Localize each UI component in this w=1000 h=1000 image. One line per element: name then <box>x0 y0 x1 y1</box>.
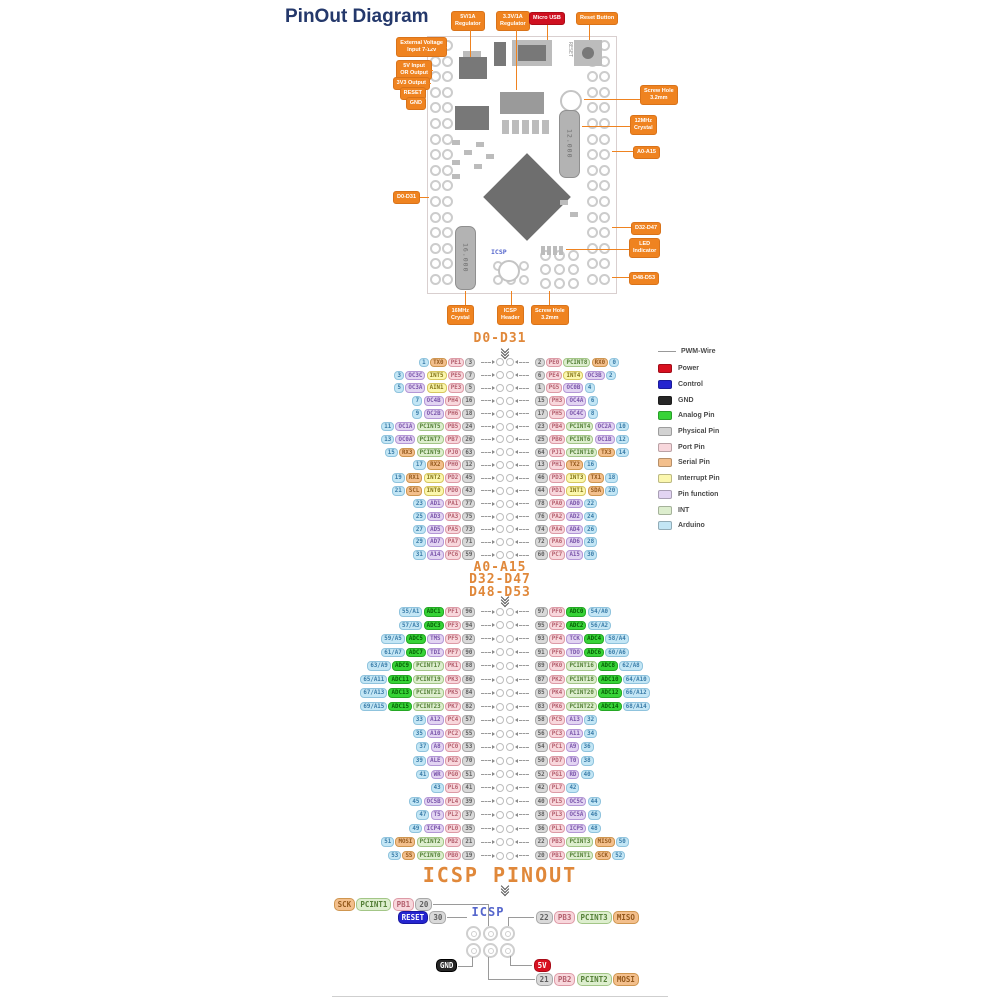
pin-row: 39ALEPG27050PD7T038 <box>10 754 1000 768</box>
leader-line <box>470 29 471 57</box>
pin-pill-6: 6 <box>588 396 598 406</box>
board-pad <box>599 274 610 285</box>
pin-pill-rd: RD <box>566 770 579 780</box>
pin-pill-23: 23 <box>535 422 548 432</box>
pin-pill-pk7: PK7 <box>445 702 461 712</box>
pin-pill-oc1b: OC1B <box>595 435 615 445</box>
pin-pill-48: 48 <box>588 824 601 834</box>
pin-row-right: 56PC3A1134 <box>534 729 764 739</box>
pin-row: 49ICP4PL03536PL1ICP548 <box>10 822 1000 836</box>
pin-pill-38: 38 <box>535 810 548 820</box>
pin-pill-int2: INT2 <box>424 473 444 483</box>
pin-pill-13: 13 <box>535 460 548 470</box>
pin-pill-pcint19: PCINT19 <box>413 675 443 685</box>
pin-pill-pk0: PK0 <box>549 661 565 671</box>
connector-line <box>488 979 535 980</box>
pin-row: 57/A3ADC3PF39495PF2ADC256/A2 <box>10 619 1000 633</box>
pin-row-right: 54PC1A936 <box>534 742 764 752</box>
pin-pill-pe5: PE5 <box>448 371 464 381</box>
pin-pill-pcint3: PCINT3 <box>566 837 593 847</box>
legend-label: Port Pin <box>678 444 705 451</box>
board-pad <box>442 243 453 254</box>
pin-row-right: 50PD7T038 <box>534 756 764 766</box>
pin-row-left: 33A12PC457 <box>246 715 476 725</box>
pin-row-right: 60PC7A1530 <box>534 550 744 560</box>
pin-pill-pc1: PC1 <box>549 742 565 752</box>
capacitor <box>476 142 484 147</box>
pin-pill-tx0: TX0 <box>430 358 446 368</box>
pin-pill-18: 18 <box>605 473 618 483</box>
pin-pill-56: 56 <box>535 729 548 739</box>
pin-pill-41: 41 <box>416 770 429 780</box>
pin-pill-92: 92 <box>462 634 475 644</box>
regulator-5v-tab <box>463 51 481 57</box>
chip-pads <box>476 608 534 616</box>
chip-pads <box>476 770 534 778</box>
callout-12mhz-crystal: 12MHz Crystal <box>630 115 657 135</box>
pin-pill-26: 26 <box>584 525 597 535</box>
icsp-pin <box>466 943 481 958</box>
pin-pill-int0: INT0 <box>424 486 444 496</box>
leader-line <box>420 197 429 198</box>
pin-pill-mosi: MOSI <box>395 837 415 847</box>
icsp-miso-group: 22PB3PCINT3MISO <box>535 911 639 924</box>
pin-pill-oc0b: OC0B <box>563 383 583 393</box>
pin-pill-pb1: PB1 <box>393 898 415 911</box>
pin-pill-pd1: PD1 <box>549 486 565 496</box>
pin-pill-39: 39 <box>413 756 426 766</box>
bottom-divider <box>332 996 668 997</box>
pin-pill-3: 3 <box>465 358 475 368</box>
callout-16mhz-crystal: 16MHz Crystal <box>447 305 474 325</box>
pin-pill-5: 5 <box>465 383 475 393</box>
capacitor <box>452 140 460 145</box>
pin-pill-pe1: PE1 <box>448 358 464 368</box>
pin-pill-ad0: AD0 <box>566 499 582 509</box>
pin-pill-14: 14 <box>616 448 629 458</box>
pin-pill-47: 47 <box>416 810 429 820</box>
pin-row-right: 95PF2ADC256/A2 <box>534 621 764 631</box>
connector-line <box>509 917 534 918</box>
pin-row-left: 49ICP4PL035 <box>246 824 476 834</box>
leader-line <box>549 291 550 305</box>
legend-item: Port Pin <box>658 439 720 455</box>
pin-row-left: 35A10PC255 <box>246 729 476 739</box>
capacitor <box>502 120 509 134</box>
pin-pill-pc5: PC5 <box>549 715 565 725</box>
legend-label: GND <box>678 397 694 404</box>
chip-pads <box>476 487 534 495</box>
chip-pads <box>476 371 534 379</box>
micro-usb-inner <box>518 45 546 61</box>
pin-pill-pc6: PC6 <box>445 550 461 560</box>
led <box>559 246 563 255</box>
pin-pill-19: 19 <box>462 851 475 861</box>
pin-pill-67-a13: 67/A13 <box>360 688 387 698</box>
legend-swatch <box>658 458 672 467</box>
pin-pill-12: 12 <box>462 460 475 470</box>
board-pad <box>430 196 441 207</box>
connector-line <box>447 917 467 918</box>
pin-pill-sck: SCK <box>595 851 611 861</box>
pin-row-left: 27AD5PA573 <box>266 525 476 535</box>
pin-pill-42: 42 <box>535 783 548 793</box>
reset-silkscreen: RESET <box>567 42 573 57</box>
pin-row-left: 43PL641 <box>246 783 476 793</box>
pin-pill-84: 84 <box>462 688 475 698</box>
pin-row: 27AD5PA57374PA4AD426 <box>10 523 1000 536</box>
pin-row: 1TX0PE132PE0PCINT8RX00 <box>10 356 1000 369</box>
led <box>547 246 551 255</box>
pin-pill-63: 63 <box>462 448 475 458</box>
pin-pill-39: 39 <box>462 797 475 807</box>
legend-label: Interrupt Pin <box>678 475 720 482</box>
chip-pads <box>476 730 534 738</box>
legend-label: Analog Pin <box>678 412 715 419</box>
pin-pill-57: 57 <box>462 715 475 725</box>
pin-pill-pf6: PF6 <box>549 648 565 658</box>
leader-line <box>589 25 590 40</box>
pin-row-right: 52PG1RD40 <box>534 770 764 780</box>
pin-pill-82: 82 <box>462 702 475 712</box>
callout-a0-a15: A0-A15 <box>633 146 660 159</box>
board-pad <box>519 261 529 271</box>
legend-swatch <box>658 506 672 515</box>
chip-pads <box>476 358 534 366</box>
pin-row: 21SCLINT0PD04344PD1INT1SDA20 <box>10 484 1000 497</box>
pin-row-left: 9OC2BPH618 <box>266 409 476 419</box>
pin-pill-oc5c: OC5C <box>566 797 586 807</box>
chip-pads <box>476 648 534 656</box>
pin-row-left: 55/A1ADC1PF196 <box>246 607 476 617</box>
pin-pill-scl: SCL <box>406 486 422 496</box>
chip-pads <box>476 500 534 508</box>
board-pad <box>442 274 453 285</box>
capacitor <box>474 164 482 169</box>
pin-pill-pl4: PL4 <box>445 797 461 807</box>
pin-pill-40: 40 <box>581 770 594 780</box>
pin-row-left: 3OC3CINT5PE57 <box>266 371 476 381</box>
pin-pill-ale: ALE <box>427 756 443 766</box>
board-pad <box>568 250 579 261</box>
pin-row-right: 85PK4PCINT20ADC1266/A12 <box>534 688 764 698</box>
capacitor <box>452 174 460 179</box>
pin-pill-57-a3: 57/A3 <box>399 621 422 631</box>
pin-pill-a12: A12 <box>427 715 443 725</box>
pin-pill-pk1: PK1 <box>445 661 461 671</box>
pin-pill-pl0: PL0 <box>445 824 461 834</box>
pin-row-left: 5OC3AAIN1PE35 <box>266 383 476 393</box>
pin-pill-pb6: PB6 <box>549 435 565 445</box>
pin-pill-int4: INT4 <box>563 371 583 381</box>
pin-pill-adc14: ADC14 <box>598 702 621 712</box>
connector-line <box>510 956 511 966</box>
pin-row-right: 22PB3PCINT3MISO50 <box>534 837 764 847</box>
legend-item: Power <box>658 361 720 377</box>
connector-line <box>458 966 473 967</box>
icsp-gnd-group: GND <box>435 959 458 972</box>
icsp-5v-group: 5V <box>533 959 551 972</box>
board-pad <box>442 118 453 129</box>
pin-pill-pj1: PJ1 <box>549 448 565 458</box>
pin-pill-22: 22 <box>584 499 597 509</box>
legend-item: INT <box>658 502 720 518</box>
board-pad <box>554 264 565 275</box>
pin-pill-a9: A9 <box>566 742 579 752</box>
pin-pill-37: 37 <box>462 810 475 820</box>
pin-pill-pa0: PA0 <box>549 499 565 509</box>
pin-pill-pcint2: PCINT2 <box>577 973 612 986</box>
crystal-12mhz-component: 12.000 <box>559 110 580 178</box>
leader-line <box>584 99 640 100</box>
pin-pill-88: 88 <box>462 661 475 671</box>
pin-pill-adc5: ADC5 <box>406 634 426 644</box>
pin-pill-93: 93 <box>535 634 548 644</box>
pin-pill-31: 31 <box>413 550 426 560</box>
board-pad <box>442 196 453 207</box>
board-pad <box>430 274 441 285</box>
pin-pill-oc3c: OC3C <box>405 371 425 381</box>
pin-pill-pe3: PE3 <box>448 383 464 393</box>
legend-swatch <box>658 474 672 483</box>
pin-pill-28: 28 <box>584 537 597 547</box>
pin-pill-8: 8 <box>588 409 598 419</box>
pin-pill-69-a15: 69/A15 <box>360 702 387 712</box>
pin-row: 9OC2BPH61817PH5OC4C8 <box>10 407 1000 420</box>
legend-item: Analog Pin <box>658 408 720 424</box>
pin-row-left: 17RX2PH012 <box>266 460 476 470</box>
pin-pill-adc3: ADC3 <box>424 621 444 631</box>
pin-pill-43: 43 <box>462 486 475 496</box>
pin-pill-5v: 5V <box>534 959 551 972</box>
pin-row-left: 53SSPCINT0PB019 <box>246 851 476 861</box>
pin-row-left: 65/A11ADC11PCINT19PK386 <box>246 675 476 685</box>
callout-screw-hole-top: Screw Hole 3.2mm <box>640 85 678 105</box>
pin-pill-oc4a: OC4A <box>566 396 586 406</box>
pin-pill-adc13: ADC13 <box>388 688 411 698</box>
pin-pill-19: 19 <box>392 473 405 483</box>
pin-pill-adc8: ADC8 <box>598 661 618 671</box>
section-rows-0: 1TX0PE132PE0PCINT8RX003OC3CINT5PE576PE4I… <box>0 356 1000 562</box>
pin-pill-adc7: ADC7 <box>406 648 426 658</box>
pin-row-left: 37A8PC053 <box>246 742 476 752</box>
pin-pill-pg1: PG1 <box>549 770 565 780</box>
chip-pads <box>476 384 534 392</box>
legend-swatch <box>658 443 672 452</box>
pin-pill-pa3: PA3 <box>445 512 461 522</box>
pin-pill-wr: WR <box>431 770 444 780</box>
pin-pill-ad2: AD2 <box>566 512 582 522</box>
pin-row: 67/A13ADC13PCINT21PK58485PK4PCINT20ADC12… <box>10 686 1000 700</box>
pin-row-left: 63/A9ADC9PCINT17PK188 <box>246 661 476 671</box>
pin-pill-63-a9: 63/A9 <box>367 661 390 671</box>
pin-row-right: 72PA6AD628 <box>534 537 744 547</box>
board-pad <box>540 264 551 275</box>
pin-pill-ph1: PH1 <box>549 460 565 470</box>
pin-pill-2: 2 <box>606 371 616 381</box>
pin-pill-46: 46 <box>535 473 548 483</box>
pin-pill-76: 76 <box>535 512 548 522</box>
reset-button-cap <box>582 47 594 59</box>
chip-pads <box>476 474 534 482</box>
chip-pads <box>476 716 534 724</box>
pin-pill-pf7: PF7 <box>445 648 461 658</box>
pin-pill-adc4: ADC4 <box>584 634 604 644</box>
chip-pads <box>476 461 534 469</box>
pin-pill-68-a14: 68/A14 <box>623 702 650 712</box>
leader-line <box>511 291 512 305</box>
pin-row-left: 41WRPG051 <box>246 770 476 780</box>
pin-pill-t0: T0 <box>566 756 579 766</box>
pin-pill-72: 72 <box>535 537 548 547</box>
pin-pill-55: 55 <box>462 729 475 739</box>
pin-pill-60: 60 <box>535 550 548 560</box>
pin-pill-ss: SS <box>402 851 415 861</box>
pin-pill-51: 51 <box>381 837 394 847</box>
icsp-pin <box>500 943 515 958</box>
pin-pill-sck: SCK <box>334 898 356 911</box>
pin-pill-66-a12: 66/A12 <box>623 688 650 698</box>
pin-pill-sda: SDA <box>588 486 604 496</box>
pin-pill-adc15: ADC15 <box>388 702 411 712</box>
pin-pill-4: 4 <box>585 383 595 393</box>
pin-pill-oc3b: OC3B <box>585 371 605 381</box>
pin-pill-61-a7: 61/A7 <box>381 648 404 658</box>
small-component <box>494 42 506 66</box>
leader-line <box>547 25 548 40</box>
pin-pill-pcint20: PCINT20 <box>566 688 596 698</box>
pin-pill-oc3a: OC3A <box>405 383 425 393</box>
pin-pill-pcint1: PCINT1 <box>356 898 391 911</box>
pin-pill-pcint10: PCINT10 <box>566 448 596 458</box>
pin-pill-pl1: PL1 <box>549 824 565 834</box>
pin-row: 37A8PC05354PC1A936 <box>10 740 1000 754</box>
pin-pill-pcint22: PCINT22 <box>566 702 596 712</box>
pin-pill-a15: A15 <box>566 550 582 560</box>
pin-row: 59/A5ADC5TMSPF59293PF4TCKADC458/A4 <box>10 632 1000 646</box>
pin-pill-ph4: PH4 <box>445 396 461 406</box>
pin-row-left: 67/A13ADC13PCINT21PK584 <box>246 688 476 698</box>
pin-pill-pg0: PG0 <box>445 770 461 780</box>
pin-pill-pcint23: PCINT23 <box>413 702 443 712</box>
pin-pill-36: 36 <box>535 824 548 834</box>
icsp-silkscreen: ICSP <box>491 248 507 256</box>
board-pad <box>587 274 598 285</box>
pin-pill-pf3: PF3 <box>445 621 461 631</box>
board-pad <box>540 278 551 289</box>
pin-pill-96: 96 <box>462 607 475 617</box>
icsp-pinout-title: ICSP PINOUT <box>0 863 1000 887</box>
pin-pill-pe0: PE0 <box>546 358 562 368</box>
pin-pill-9: 9 <box>412 409 422 419</box>
pin-pill-54: 54 <box>535 742 548 752</box>
pin-row: 63/A9ADC9PCINT17PK18889PK0PCINT16ADC862/… <box>10 659 1000 673</box>
legend-swatch <box>658 411 672 420</box>
pin-pill-oc4c: OC4C <box>566 409 586 419</box>
pin-pill-int5: INT5 <box>427 371 447 381</box>
pin-row: 13OC0APCINT7PB72625PB6PCINT6OC1B12 <box>10 433 1000 446</box>
pin-pill-rx1: RX1 <box>406 473 422 483</box>
board-pad <box>599 134 610 145</box>
led <box>541 246 545 255</box>
pin-pill-adc11: ADC11 <box>388 675 411 685</box>
pwm-wire-line <box>658 351 676 352</box>
crystal-12mhz-text: 12.000 <box>566 129 574 158</box>
pin-pill-21: 21 <box>536 973 553 986</box>
pin-pill-pa4: PA4 <box>549 525 565 535</box>
pin-pill-20: 20 <box>415 898 432 911</box>
pin-pill-tdo: TDO <box>566 648 582 658</box>
pin-pill-a14: A14 <box>427 550 443 560</box>
pin-row: 17RX2PH01213PH1TX216 <box>10 459 1000 472</box>
legend: PWM-Wire PowerControlGNDAnalog PinPhysic… <box>658 346 720 534</box>
leader-line <box>428 70 433 71</box>
pin-pill-tx2: TX2 <box>566 460 582 470</box>
board-pad <box>599 118 610 129</box>
pin-pill-pd0: PD0 <box>445 486 461 496</box>
legend-label: INT <box>678 507 689 514</box>
capacitor <box>486 154 494 159</box>
board-pad <box>599 87 610 98</box>
usb-interface-ic <box>500 92 544 114</box>
chip-pads <box>476 423 534 431</box>
pin-row-left: 57/A3ADC3PF394 <box>246 621 476 631</box>
leader-line <box>582 126 630 127</box>
pin-row: 29AD7PA77172PA6AD628 <box>10 536 1000 549</box>
pin-pill-pl5: PL5 <box>549 797 565 807</box>
capacitor <box>464 150 472 155</box>
screw-hole-bottom <box>498 260 520 282</box>
leader-line <box>516 29 517 90</box>
pin-pill-pcint9: PCINT9 <box>417 448 444 458</box>
pin-pill-pk2: PK2 <box>549 675 565 685</box>
down-arrows-icon <box>0 886 1000 895</box>
pin-pill-15: 15 <box>535 396 548 406</box>
chip-pads <box>476 551 534 559</box>
pin-row-right: 58PC5A1332 <box>534 715 764 725</box>
pin-row: 45OC5BPL43940PL5OC5C44 <box>10 795 1000 809</box>
pin-pill-int3: INT3 <box>566 473 586 483</box>
pin-pill-60-a6: 60/A6 <box>605 648 628 658</box>
pin-row-left: 61/A7ADC7TDIPF790 <box>246 648 476 658</box>
pin-pill-41: 41 <box>462 783 475 793</box>
pin-pill-52: 52 <box>535 770 548 780</box>
pin-pill-91: 91 <box>535 648 548 658</box>
pin-row-left: 25AD3PA375 <box>266 512 476 522</box>
board-pad <box>587 118 598 129</box>
legend-label: Arduino <box>678 522 705 529</box>
pin-row-left: 23AD1PA177 <box>266 499 476 509</box>
pin-pill-51: 51 <box>462 770 475 780</box>
capacitor <box>542 120 549 134</box>
pin-row-left: 7OC4BPH416 <box>266 396 476 406</box>
legend-swatch <box>658 380 672 389</box>
callout-reset-button: Reset Button <box>576 12 618 25</box>
pin-row: 47T5PL23738PL3OC5A46 <box>10 808 1000 822</box>
chip-pads <box>476 757 534 765</box>
pin-row: 11OC1APCINT5PB52423PB4PCINT4OC2A10 <box>10 420 1000 433</box>
pin-pill-pa5: PA5 <box>445 525 461 535</box>
pin-pill-pb3: PB3 <box>554 911 576 924</box>
pin-pill-pcint7: PCINT7 <box>417 435 444 445</box>
pin-pill-tck: TCK <box>566 634 582 644</box>
pin-row-right: 20PB1PCINT1SCK52 <box>534 851 764 861</box>
pin-pill-32: 32 <box>584 715 597 725</box>
pin-pill-36: 36 <box>581 742 594 752</box>
pin-pill-7: 7 <box>412 396 422 406</box>
pin-pill-50: 50 <box>535 756 548 766</box>
pin-pill-pl2: PL2 <box>445 810 461 820</box>
